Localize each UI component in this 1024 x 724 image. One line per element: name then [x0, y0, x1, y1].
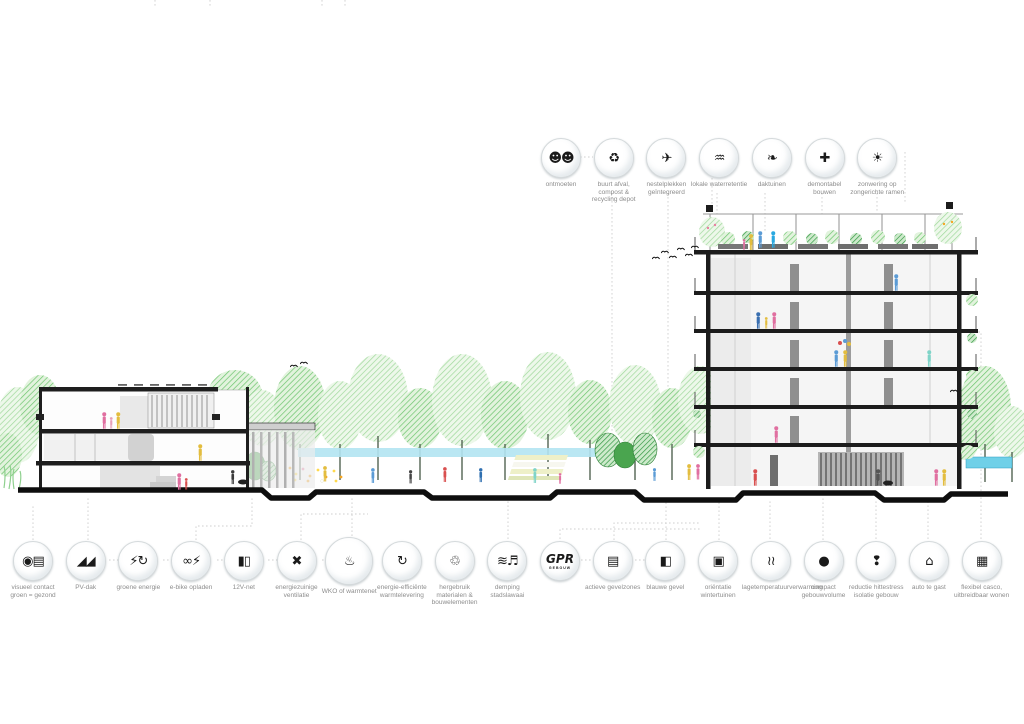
wko-of-warmtenet-glyph-icon: ♨: [344, 555, 355, 568]
gpr-gebouw-sub: GEBOUW: [549, 566, 571, 570]
icon-label-pv-dak: PV-dak: [75, 584, 96, 592]
icon-label-zonwering: zonwering op zongerichte ramen: [848, 181, 906, 196]
zonwering-glyph-icon: ☀: [872, 152, 883, 165]
icon-flexibel-casco: ▦flexibel casco, uitbreidbaar wonen: [950, 541, 1014, 599]
icon-label-e-bike-opladen: e-bike opladen: [170, 584, 213, 592]
daktuinen-circle: ❧: [752, 138, 792, 178]
orientatie-wintertuinen-circle: ▣: [698, 541, 738, 581]
icon-label-flexibel-casco: flexibel casco, uitbreidbaar wonen: [953, 584, 1011, 599]
groene-energie-glyph-icon: ⚡↻: [129, 555, 147, 568]
louver-screen: [148, 393, 214, 428]
gpr-gebouw-circle: GPRGEBOUW: [540, 541, 580, 581]
icon-label-12v-net: 12V-net: [233, 584, 255, 592]
water-feature: [298, 448, 643, 457]
auto-te-gast-circle: ⌂: [909, 541, 949, 581]
e-bike-opladen-circle: ∞⚡: [171, 541, 211, 581]
demping-stadslawaai-glyph-icon: ≋♬: [497, 555, 518, 568]
ontmoeten-circle: ☻☻: [541, 138, 581, 178]
wko-of-warmtenet-circle: ♨: [325, 537, 373, 585]
demontabel-bouwen-glyph-icon: ✚: [820, 152, 830, 165]
hergebruik-materialen-glyph-icon: ♲: [449, 555, 460, 568]
lagetemperatuurverwarming-glyph-icon: ≀≀: [767, 555, 775, 568]
roof-solar-ticks: [118, 384, 207, 386]
lokale-waterretentie-circle: ♒: [699, 138, 739, 178]
icon-label-auto-te-gast: auto te gast: [912, 584, 946, 592]
groene-energie-circle: ⚡↻: [118, 541, 158, 581]
section-drawing: [0, 0, 1024, 724]
visueel-contact-groen-glyph-icon: ◉▤: [22, 555, 44, 568]
lagetemperatuurverwarming-circle: ≀≀: [751, 541, 791, 581]
auto-te-gast-glyph-icon: ⌂: [925, 555, 932, 568]
rooftop-garden: [699, 212, 962, 249]
daktuinen-glyph-icon: ❧: [767, 152, 777, 165]
icon-zonwering: ☀zonwering op zongerichte ramen: [845, 138, 909, 196]
crosswalk-path: [508, 455, 568, 480]
canvas: ☻☻ontmoeten♻buurt afval, compost & recyc…: [0, 0, 1024, 724]
pv-dak-circle: ◢◢: [66, 541, 106, 581]
ground-line: [18, 490, 1008, 500]
compact-gebouwvolume-circle: ●: [804, 541, 844, 581]
icon-label-actieve-gevelzones: actieve gevelzones: [585, 584, 640, 592]
reductie-hittestress-glyph-icon: ❢: [871, 555, 881, 568]
blauwe-gevel-circle: ◧: [645, 541, 685, 581]
icon-label-groene-energie: groene energie: [117, 584, 161, 592]
energie-efficiente-warmtelevering-circle: ↻: [382, 541, 422, 581]
buurt-afval-compost-glyph-icon: ♻: [608, 152, 619, 165]
pv-dak-glyph-icon: ◢◢: [77, 555, 95, 568]
roof-slab: [40, 387, 218, 392]
reductie-hittestress-circle: ❢: [856, 541, 896, 581]
e-bike-opladen-glyph-icon: ∞⚡: [182, 555, 200, 568]
energiezuinige-ventilatie-circle: ✖: [277, 541, 317, 581]
compact-gebouwvolume-glyph-icon: ●: [818, 555, 828, 568]
energiezuinige-ventilatie-glyph-icon: ✖: [292, 555, 302, 568]
orientatie-wintertuinen-glyph-icon: ▣: [712, 555, 723, 568]
actieve-gevelzones-circle: ▤: [593, 541, 633, 581]
12v-net-circle: ▮▯: [224, 541, 264, 581]
gpr-gebouw-glyph-icon: GPR: [546, 553, 574, 566]
icon-label-ontmoeten: ontmoeten: [546, 181, 577, 189]
hergebruik-materialen-circle: ♲: [435, 541, 475, 581]
12v-net-glyph-icon: ▮▯: [238, 555, 250, 568]
icon-label-demping-stadslawaai: demping stadslawaai: [478, 584, 536, 599]
actieve-gevelzones-glyph-icon: ▤: [607, 555, 618, 568]
flexibel-casco-glyph-icon: ▦: [976, 555, 987, 568]
water-right: [966, 457, 1012, 468]
buurt-afval-compost-circle: ♻: [594, 138, 634, 178]
lokale-waterretentie-glyph-icon: ♒: [714, 152, 725, 165]
icon-label-wko-of-warmtenet: WKO of warmtenet: [322, 588, 377, 596]
demontabel-bouwen-circle: ✚: [805, 138, 845, 178]
demping-stadslawaai-circle: ≋♬: [487, 541, 527, 581]
nestelplekken-circle: ✈: [646, 138, 686, 178]
nestelplekken-glyph-icon: ✈: [661, 152, 671, 165]
energie-efficiente-warmtelevering-glyph-icon: ↻: [397, 555, 407, 568]
visueel-contact-groen-circle: ◉▤: [13, 541, 53, 581]
zonwering-circle: ☀: [857, 138, 897, 178]
right-building-section: [693, 202, 978, 489]
ground-floor-slats: [818, 452, 904, 486]
ontmoeten-glyph-icon: ☻☻: [548, 152, 573, 165]
icon-label-daktuinen: daktuinen: [758, 181, 786, 189]
flexibel-casco-circle: ▦: [962, 541, 1002, 581]
blauwe-gevel-glyph-icon: ◧: [660, 555, 671, 568]
icon-label-blauwe-gevel: blauwe gevel: [646, 584, 684, 592]
